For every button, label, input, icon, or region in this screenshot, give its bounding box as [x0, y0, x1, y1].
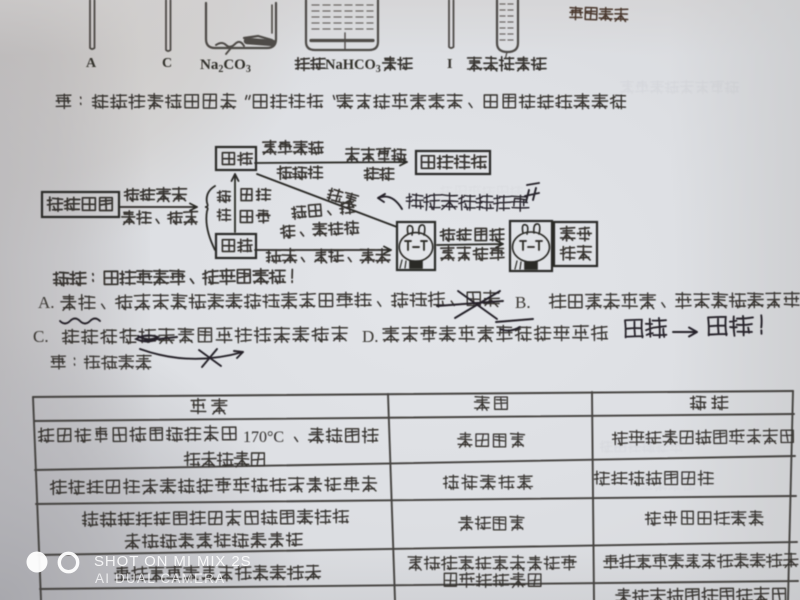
svg-text:C.: C. [33, 327, 49, 346]
svg-text:C: C [162, 56, 172, 71]
svg-text:170°C: 170°C [243, 429, 284, 446]
svg-text:A: A [86, 56, 97, 71]
svg-text:I: I [447, 57, 452, 72]
svg-text:NaHCO3: NaHCO3 [325, 57, 381, 75]
svg-text:A.: A. [38, 293, 55, 312]
svg-text:AI DUAL CAMERA: AI DUAL CAMERA [95, 571, 225, 586]
svg-text:B.: B. [515, 293, 531, 312]
svg-text:SHOT ON MI MIX 2S: SHOT ON MI MIX 2S [94, 553, 252, 570]
svg-text:D.: D. [362, 327, 379, 346]
svg-text:Na2CO3: Na2CO3 [200, 57, 251, 75]
